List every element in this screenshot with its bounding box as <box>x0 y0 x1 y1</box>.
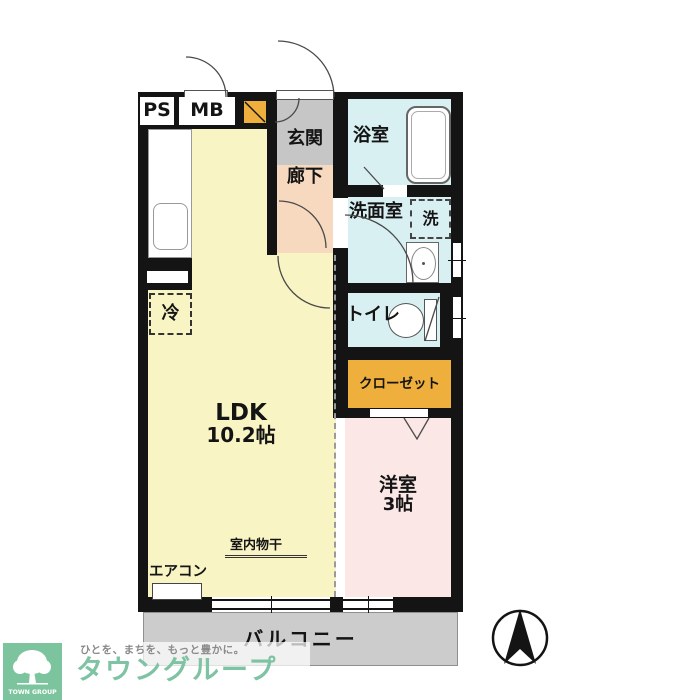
pipe-space-label: PS <box>143 101 171 121</box>
western-size-label: 3帖 <box>345 496 451 515</box>
window-ldk-balcony <box>212 599 330 610</box>
room-ldk-upper <box>192 129 267 253</box>
wall-toilet-closet <box>333 347 451 360</box>
shaft-diagonal <box>244 101 266 123</box>
wall-right <box>451 92 463 612</box>
refrigerator-box: 冷 <box>149 293 192 335</box>
compass-needle <box>504 609 536 664</box>
closet-label: クローゼット <box>359 377 440 391</box>
refrigerator-label: 冷 <box>162 305 180 324</box>
wall-midcol-upper <box>333 98 348 198</box>
ldk-label: LDK <box>150 401 332 425</box>
wall-left <box>138 92 148 612</box>
closet-label-wrap: クローゼット <box>348 360 451 408</box>
shaft-box <box>242 99 268 125</box>
floorplan-page: バルコニー PS MB 冷 洗 <box>0 0 700 700</box>
window-western-balcony <box>343 599 393 610</box>
entrance-door-panel <box>276 90 334 100</box>
wall-bottom-right <box>393 597 463 612</box>
partition-dashed-line <box>334 255 336 597</box>
compass-north <box>493 609 547 665</box>
indoor-drying-rail <box>225 555 307 558</box>
bathtub-inner <box>411 111 446 179</box>
bathtub <box>406 106 451 184</box>
logo-square: TOWN GROUP <box>3 643 62 700</box>
western-label: 洋室 <box>345 476 451 496</box>
bathroom-label: 浴室 <box>353 127 389 146</box>
entrance-door-arc <box>278 41 334 97</box>
laundry-pan: 洗 <box>410 199 451 239</box>
logo-square-text: TOWN GROUP <box>8 689 57 696</box>
window-toilet <box>451 297 463 338</box>
entrance-label: 玄関 <box>287 130 323 149</box>
compass-circle <box>493 611 547 665</box>
wall-hall-left <box>267 129 277 255</box>
indoor-drying-label: 室内物干 <box>230 539 282 553</box>
ldk-label-block: LDK 10.2帖 <box>150 401 332 446</box>
washbasin-drain <box>422 262 425 265</box>
toilet-label: トイレ <box>346 306 400 325</box>
hallway-label: 廊下 <box>287 168 323 187</box>
washroom-door-opening <box>334 198 348 248</box>
aircon-label: エアコン <box>149 565 207 580</box>
wall-toilet-right <box>440 293 451 347</box>
meter-box: MB <box>179 97 235 125</box>
brand-name: タウングループ <box>76 657 277 685</box>
washbasin <box>406 242 439 283</box>
wall-bottom-mid <box>330 597 343 612</box>
wall-wash-toilet <box>333 283 451 293</box>
western-label-block: 洋室 3帖 <box>345 476 451 515</box>
pipe-space-box: PS <box>140 97 174 125</box>
toilet-tank <box>424 299 437 341</box>
bathroom-door-opening <box>383 185 407 197</box>
aircon-box <box>152 583 202 600</box>
meter-box-label: MB <box>190 101 223 121</box>
kitchen-sink <box>153 203 188 250</box>
closet-door-opening <box>370 409 428 417</box>
window-washroom <box>451 243 463 277</box>
tree-icon: TOWN GROUP <box>3 643 62 700</box>
partition-strip <box>336 418 345 597</box>
washroom-label: 洗面室 <box>349 203 403 222</box>
laundry-label: 洗 <box>422 211 438 228</box>
counter-hatch-slit <box>147 271 188 283</box>
ldk-size-label: 10.2帖 <box>150 425 332 446</box>
